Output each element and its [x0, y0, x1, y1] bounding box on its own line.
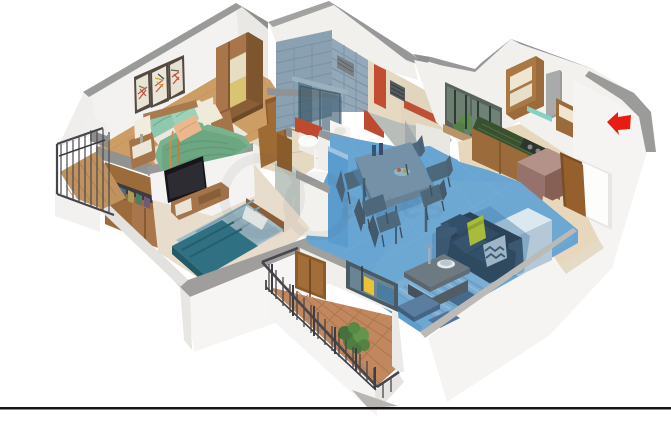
svg-text:acres: acres	[340, 183, 445, 227]
